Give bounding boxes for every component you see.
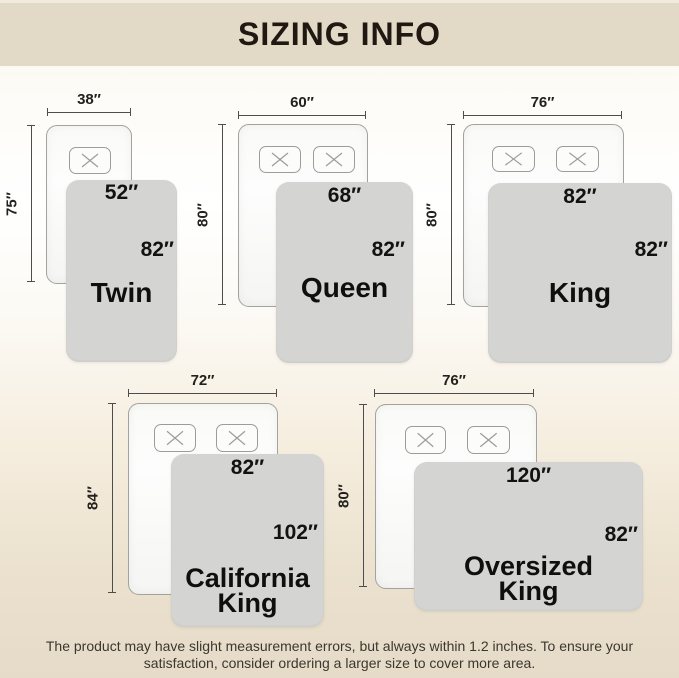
dimension-line <box>363 404 364 587</box>
pillow-x-icon <box>217 425 257 451</box>
bed-length-label: 84″ <box>85 486 102 510</box>
blanket: 68″ 82″ Queen <box>276 182 413 363</box>
bed-width-label: 76″ <box>463 94 622 111</box>
page-title: SIZING INFO <box>0 3 679 65</box>
pillow-x-icon <box>406 427 445 453</box>
bed-length-label: 80″ <box>424 203 441 227</box>
size-name: Twin <box>66 280 177 305</box>
blanket-length-label: 82″ <box>605 523 638 547</box>
dimension-line <box>451 124 452 305</box>
header-banner: SIZING INFO <box>0 0 679 66</box>
length-dimension: 80″ <box>359 404 367 587</box>
diagram-california-king: 72″ 84″ 82″ 102″ California King <box>85 368 335 636</box>
size-name: Oversized King <box>444 554 613 604</box>
footer-note: The product may have slight measurement … <box>0 638 679 672</box>
blanket: 52″ 82″ Twin <box>66 180 177 362</box>
diagram-oversized-king: 76″ 80″ 120″ 82″ Oversized King <box>330 368 679 636</box>
dimension-line <box>128 393 277 394</box>
blanket-width-label: 120″ <box>414 464 643 488</box>
pillow <box>467 426 510 454</box>
bed-length-label: 80″ <box>195 203 212 227</box>
blanket-length-label: 102″ <box>273 521 318 545</box>
pillow <box>405 426 446 454</box>
pillow-x-icon <box>260 147 300 172</box>
blanket-width-label: 82″ <box>171 456 324 480</box>
blanket-width-label: 68″ <box>276 184 413 208</box>
length-dimension: 80″ <box>447 124 455 305</box>
width-dimension: 76″ <box>374 389 534 397</box>
size-name: Queen <box>276 275 413 300</box>
diagram-king: 76″ 80″ 82″ 82″ King <box>415 85 679 377</box>
bed-length-label: 80″ <box>336 484 353 508</box>
pillow <box>259 146 301 173</box>
dimension-line <box>31 125 32 282</box>
dimension-line <box>238 115 366 116</box>
dimension-line <box>374 393 534 394</box>
blanket-width-label: 82″ <box>488 185 672 209</box>
pillow <box>69 147 111 174</box>
pillow <box>556 146 599 172</box>
blanket-width-label: 52″ <box>66 181 177 205</box>
bed-width-label: 60″ <box>238 94 366 111</box>
pillow-x-icon <box>557 147 598 171</box>
pillow <box>492 146 535 172</box>
pillow-x-icon <box>155 425 195 451</box>
blanket: 120″ 82″ Oversized King <box>414 462 643 611</box>
bed-width-label: 38″ <box>47 91 131 108</box>
pillow-x-icon <box>314 147 354 172</box>
pillow <box>154 424 196 452</box>
width-dimension: 38″ <box>47 108 131 116</box>
dimension-line <box>112 403 113 593</box>
blanket-length-label: 82″ <box>141 238 174 262</box>
blanket-length-label: 82″ <box>635 238 668 262</box>
width-dimension: 72″ <box>128 389 277 397</box>
size-name: California King <box>171 566 324 616</box>
pillow-x-icon <box>70 148 110 173</box>
length-dimension: 84″ <box>108 403 116 593</box>
footer-line-2: satisfaction, consider ordering a larger… <box>0 655 679 672</box>
width-dimension: 60″ <box>238 111 366 119</box>
blanket-length-label: 82″ <box>372 238 405 262</box>
pillow-x-icon <box>468 427 509 453</box>
dimension-line <box>463 115 622 116</box>
pillow <box>216 424 258 452</box>
dimension-line <box>47 112 131 113</box>
length-dimension: 75″ <box>27 125 35 282</box>
footer-line-1: The product may have slight measurement … <box>0 638 679 655</box>
bed-width-label: 76″ <box>374 372 534 389</box>
dimension-line <box>222 124 223 305</box>
pillow <box>313 146 355 173</box>
size-name: King <box>488 280 672 305</box>
length-dimension: 80″ <box>218 124 226 305</box>
bed-width-label: 72″ <box>128 372 277 389</box>
bed-length-label: 75″ <box>4 192 21 216</box>
blanket: 82″ 82″ King <box>488 183 672 363</box>
pillow-x-icon <box>493 147 534 171</box>
sizing-info-infographic: SIZING INFO 38″ 75″ 52″ 82″ Twin 60″ <box>0 0 679 678</box>
diagram-queen: 60″ 80″ 68″ 82″ Queen <box>190 85 420 377</box>
width-dimension: 76″ <box>463 111 622 119</box>
diagram-twin: 38″ 75″ 52″ 82″ Twin <box>0 85 185 377</box>
blanket: 82″ 102″ California King <box>171 454 324 627</box>
